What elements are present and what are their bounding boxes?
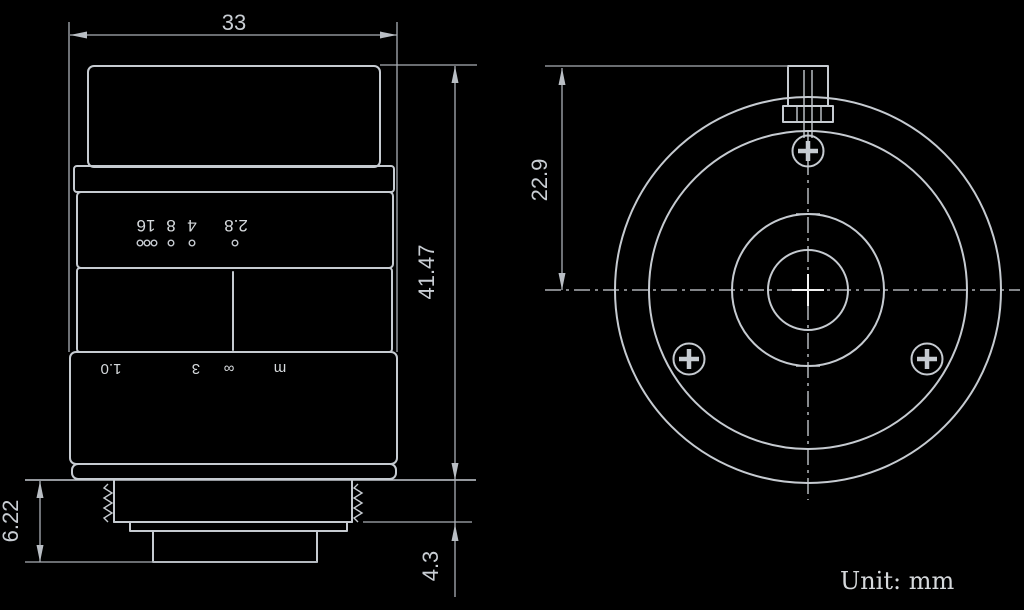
aperture-scale-4: 4 [187,216,196,235]
arrow-left [70,32,87,39]
center-cross [792,274,824,306]
unit-note: Unit: mm [840,567,954,595]
arrow-bottom [452,463,459,480]
front-view [545,66,1020,500]
dimension-41-47: 41.47 [380,65,477,480]
mid-section [77,268,392,352]
screw-bottom-left [674,344,705,375]
lens-mechanical-drawing: 16 8 4 2.8 1.0 3 ∞ m 33 [0,0,1024,610]
tab-shoulder [783,106,833,122]
aperture-tick-dots [137,240,238,246]
aperture-scale-8: 8 [166,216,175,235]
thread-left-zigzag [104,484,112,522]
dim-text-41-47: 41.47 [414,244,439,299]
focus-scale-m: m [274,360,287,377]
focus-scale-infinity: ∞ [223,360,234,377]
top-ring-band [74,166,394,192]
front-barrel-outline [88,66,380,167]
side-view: 16 8 4 2.8 1.0 3 ∞ m [25,66,476,562]
arrow-bottom [559,273,566,290]
focus-scale-1-0: 1.0 [101,360,122,377]
aperture-scale: 16 8 4 2.8 [137,216,248,246]
aperture-scale-2-8: 2.8 [224,216,248,235]
rear-flange [72,464,396,479]
lock-knob-tab [783,66,833,138]
drawing-canvas: 16 8 4 2.8 1.0 3 ∞ m 33 [0,0,1024,610]
dim-text-4-3: 4.3 [418,551,443,582]
focus-scale-3: 3 [192,360,200,377]
dim-text-22-9: 22.9 [527,159,552,202]
dim-text-33: 33 [222,10,246,35]
arrow-up [452,524,459,541]
arrow-top [559,68,566,85]
arrow-top [37,481,44,498]
screw-bottom-right [912,344,943,375]
aperture-scale-16: 16 [137,216,156,235]
dimension-22-9: 22.9 [527,66,788,290]
mount-thread-section [104,481,362,522]
rear-lip [130,522,347,531]
thread-right-zigzag [354,484,362,522]
arrow-bottom [37,545,44,562]
arrow-top [452,66,459,83]
dim-text-6-22: 6.22 [0,500,23,543]
focus-scale: 1.0 3 ∞ m [101,360,287,377]
arrow-right [380,32,397,39]
tab-outer [788,66,828,106]
rear-barrel [153,531,317,562]
dimension-4-3: 4.3 [363,480,472,597]
